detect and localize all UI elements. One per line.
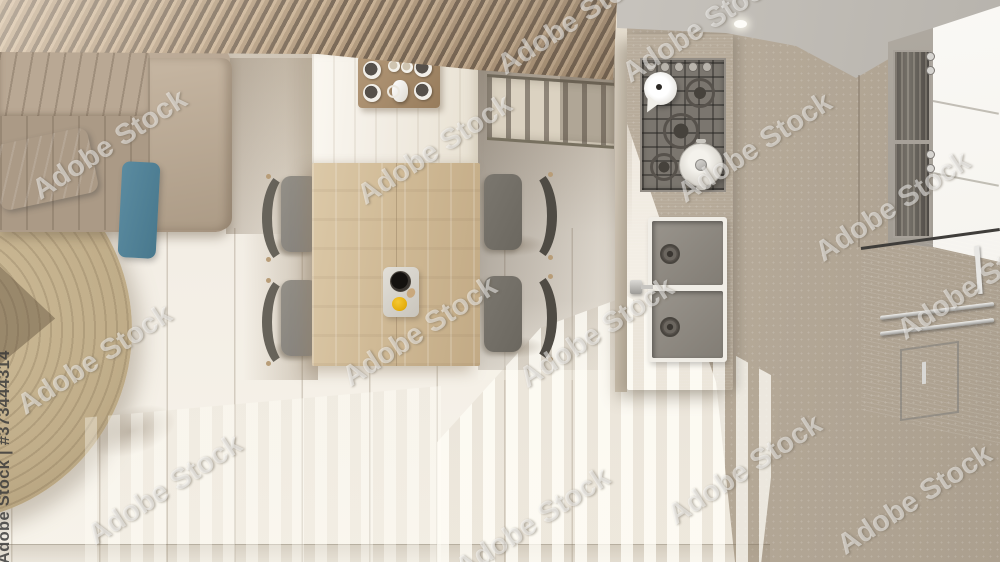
yellow-fruit [392, 297, 407, 311]
wall-edge-strip [615, 0, 627, 392]
pitcher-handle [387, 85, 400, 98]
sofa-armrest-section [148, 58, 232, 230]
pot-handle [696, 139, 706, 143]
built-in-oven-glass-door [893, 50, 931, 142]
hob-knob [674, 62, 684, 72]
table-seam [396, 163, 397, 366]
sofa-back-ribs [0, 50, 150, 118]
steel-door-panel [900, 341, 959, 421]
pot-handle [696, 186, 706, 190]
dining-chair-top-right [482, 168, 542, 258]
chair-seat [484, 174, 522, 250]
sofa [0, 50, 230, 232]
faucet-arm [641, 285, 653, 289]
hob-knob [702, 62, 712, 72]
ceiling-spotlight [734, 20, 747, 28]
mug [363, 61, 381, 79]
interior-render-top-view: Adobe Stock Adobe Stock Adobe Stock Adob… [0, 0, 1000, 562]
oven-knob [926, 150, 935, 159]
mug [363, 84, 381, 102]
hob-knob [688, 62, 698, 72]
oven-knob [926, 66, 935, 75]
sofa-back-cushions [0, 50, 150, 118]
dining-chair-bottom-right [482, 270, 542, 360]
gas-burner [685, 78, 715, 108]
pot-lid-knob [695, 159, 707, 171]
oven-knob [926, 52, 935, 61]
blue-pillow-2 [118, 161, 161, 259]
dining-table [312, 163, 480, 366]
sink-drain [660, 317, 680, 337]
hob-knob [646, 62, 656, 72]
mug [414, 82, 432, 100]
steel-door-handle [922, 362, 926, 385]
chair-seat [484, 276, 522, 352]
oven-knob [926, 164, 935, 173]
clerestory-windows-shaded [560, 74, 614, 144]
hob-knob [660, 62, 670, 72]
sink-drain [660, 244, 680, 264]
built-in-oven-glass-door [893, 142, 931, 238]
kettle-knob [656, 84, 662, 90]
gas-burner [650, 153, 678, 181]
wall-seam [858, 75, 860, 247]
watermark-id: Adobe Stock | #373444314 [0, 350, 14, 562]
